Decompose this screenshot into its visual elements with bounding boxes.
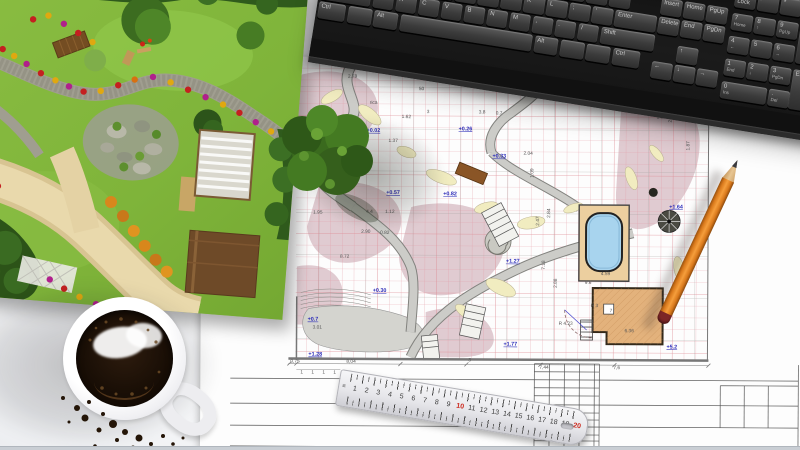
keyboard-key: Alt [373, 10, 399, 31]
ruler-hang-slot [560, 422, 574, 430]
svg-text:+0.7: +0.7 [308, 317, 319, 323]
keyboard-key: 9PgUp [776, 20, 799, 40]
keyboard-key: 6→ [772, 43, 795, 63]
svg-text:1: 1 [333, 370, 336, 376]
keyboard-key: .Del [767, 89, 790, 109]
svg-text:0.7: 0.7 [496, 111, 503, 117]
keyboard-key: N [486, 9, 509, 29]
keyboard-key: B [463, 5, 486, 25]
keyboard-key: 1End [723, 58, 746, 78]
svg-text:+0.26: +0.26 [459, 126, 473, 132]
keyboard-key: Ctrl [317, 1, 347, 22]
svg-text:1: 1 [300, 370, 303, 376]
keyboard-key: 3PgDn [768, 65, 791, 85]
keyboard-key: 5 [749, 39, 772, 59]
keyboard-key: M [509, 12, 532, 32]
svg-text:1.09: 1.09 [529, 168, 535, 178]
svg-text:7,44: 7,44 [539, 365, 549, 371]
svg-text:6.36: 6.36 [625, 328, 635, 334]
keyboard-key: 4← [727, 36, 750, 56]
keyboard-key: V [440, 1, 463, 21]
svg-text:R 3: R 3 [591, 303, 599, 309]
svg-text:1.62: 1.62 [402, 114, 412, 120]
keyboard-key: 8↑ [753, 16, 776, 36]
pool-plan [579, 205, 629, 281]
svg-text:+0.30: +0.30 [373, 288, 387, 294]
svg-text:7,6: 7,6 [613, 365, 620, 371]
keyboard-key: / [757, 0, 780, 14]
keyboard-key: Alt [533, 35, 559, 56]
keyboard-key [585, 44, 611, 65]
svg-text:7.18: 7.18 [541, 260, 547, 270]
svg-text:3.01: 3.01 [313, 325, 323, 331]
keyboard-key: K [523, 0, 546, 15]
desk-scene: 2.781.621.3733.80.72.048.724.41.121.952.… [0, 0, 800, 450]
svg-text:2.78: 2.78 [348, 74, 358, 80]
keyboard-key: 7Home [730, 13, 753, 33]
keyboard-key: Num Lock [734, 0, 757, 10]
keyboard-key: ↑ [675, 46, 698, 66]
crumbs [55, 392, 205, 450]
keyboard-key: , [531, 16, 554, 36]
keyboard-key: Insert [660, 0, 683, 18]
svg-text:+5.2: +5.2 [666, 344, 677, 350]
keyboard-key: Delete [657, 16, 680, 36]
svg-text:2.47: 2.47 [535, 216, 541, 226]
keyboard-key: C [418, 0, 441, 18]
svg-text:2.88: 2.88 [553, 278, 559, 288]
desk-edge [0, 446, 800, 450]
keyboard-key: ← [650, 61, 673, 81]
keyboard-key: * [779, 0, 800, 17]
svg-text:1.87: 1.87 [686, 141, 692, 151]
svg-text:2.84: 2.84 [546, 208, 552, 218]
svg-text:50: 50 [419, 86, 425, 92]
keyboard-key: 2↓ [746, 62, 769, 82]
svg-text:7: 7 [610, 308, 613, 314]
keyboard-key: ; [568, 2, 591, 22]
svg-text:+0.82: +0.82 [443, 191, 457, 197]
svg-text:9.6: 9.6 [585, 280, 592, 286]
svg-text:+1.77: +1.77 [503, 342, 517, 348]
keyboard-key: X [395, 0, 418, 14]
svg-text:8,04: 8,04 [346, 359, 356, 365]
svg-text:1: 1 [311, 370, 314, 376]
keyboard-key: Z [372, 0, 395, 11]
keyboard-key: / [577, 23, 600, 43]
svg-text:+1.27: +1.27 [506, 259, 520, 265]
svg-text:0,75: 0,75 [290, 358, 300, 364]
keyboard-key: . [554, 19, 577, 39]
keyboard-key [347, 6, 373, 27]
keyboard-key: J [500, 0, 523, 12]
svg-text:4.59: 4.59 [601, 271, 611, 277]
svg-text:+1.64: +1.64 [669, 204, 683, 210]
keyboard-key [559, 39, 585, 60]
svg-text:3.8: 3.8 [479, 109, 486, 115]
overhanging-tree [262, 96, 392, 236]
keyboard-key: Ctrl [611, 48, 641, 69]
keyboard-key: ↓ [672, 64, 695, 84]
svg-text:2.04: 2.04 [523, 151, 533, 157]
keyboard-key: L [546, 0, 569, 19]
svg-text:3: 3 [427, 109, 430, 115]
svg-text:3: 3 [468, 357, 471, 363]
keyboard-key: → [695, 68, 718, 88]
svg-text:8.72: 8.72 [340, 254, 350, 260]
keyboard-key: 0Ins [719, 81, 767, 105]
keyboard-key: PgUp [705, 5, 728, 25]
svg-text:+1.28: +1.28 [308, 352, 322, 358]
svg-text:+0.33: +0.33 [492, 154, 506, 160]
svg-text:1: 1 [322, 370, 325, 376]
keyboard-key: End [680, 20, 703, 40]
keyboard-key: Home [682, 1, 705, 21]
keyboard-key: ' [591, 6, 614, 26]
svg-text:R 4.23: R 4.23 [559, 321, 573, 327]
keyboard-key: PgDn [702, 24, 725, 44]
